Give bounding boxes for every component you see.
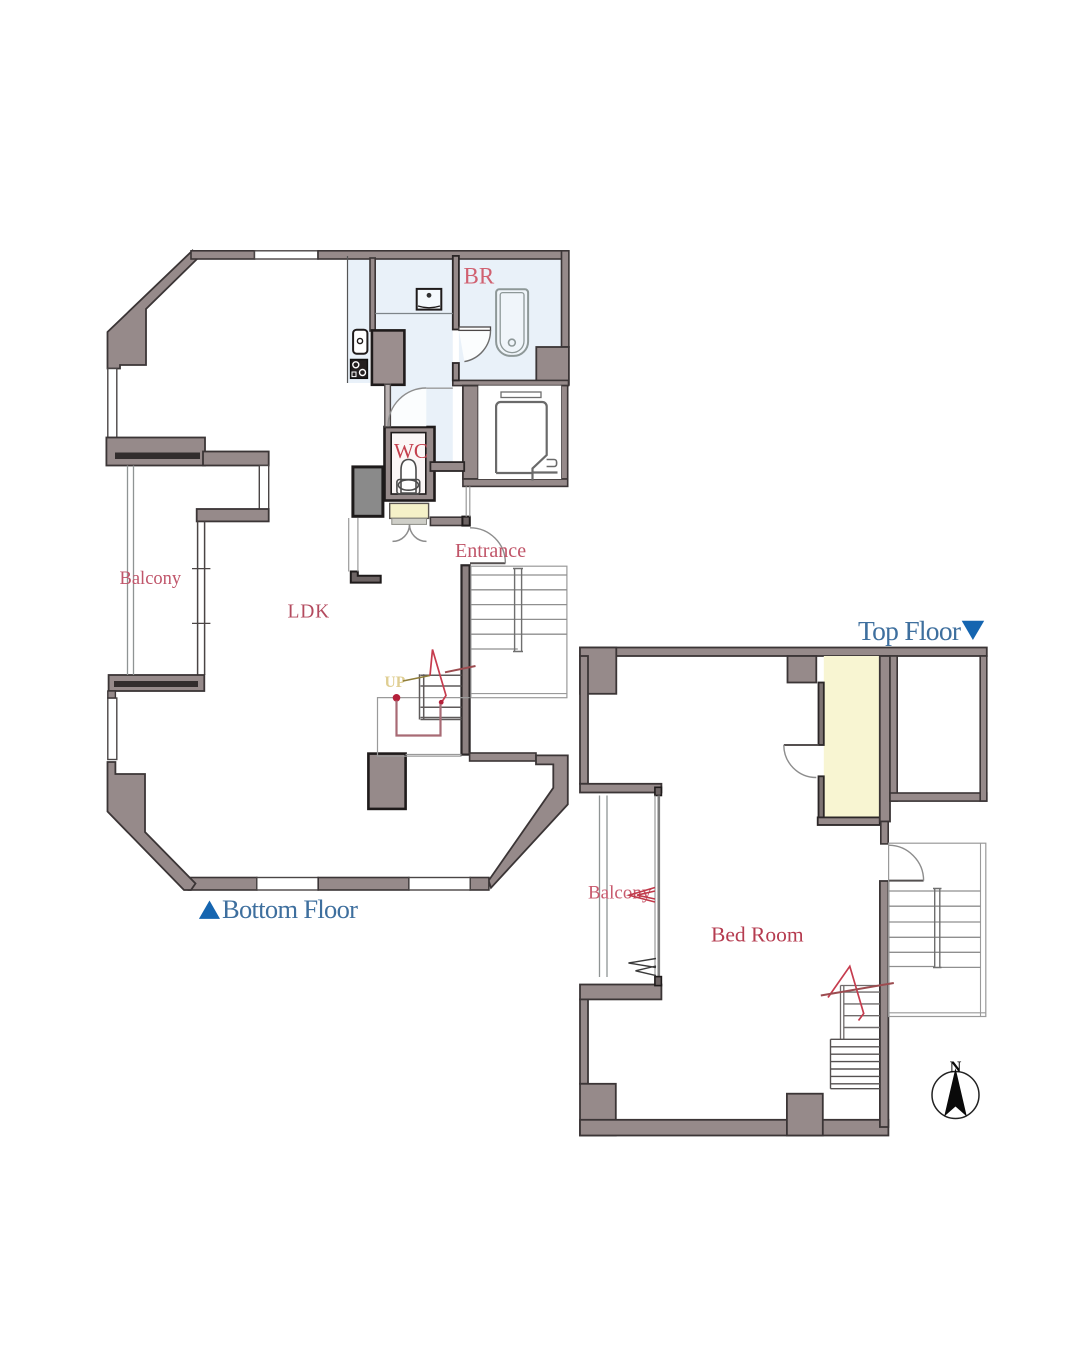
- svg-text:N: N: [950, 1059, 962, 1076]
- svg-text:UP: UP: [385, 674, 406, 691]
- svg-text:Entrance: Entrance: [455, 540, 526, 562]
- svg-text:Bed Room: Bed Room: [711, 923, 804, 947]
- svg-text:Balcony: Balcony: [588, 883, 652, 904]
- svg-text:Bottom Floor: Bottom Floor: [222, 894, 358, 924]
- svg-text:WC: WC: [394, 439, 428, 463]
- svg-text:LDK: LDK: [288, 602, 330, 623]
- svg-text:Balcony: Balcony: [120, 569, 182, 589]
- svg-text:BR: BR: [464, 264, 495, 289]
- svg-text:Top Floor: Top Floor: [858, 615, 961, 646]
